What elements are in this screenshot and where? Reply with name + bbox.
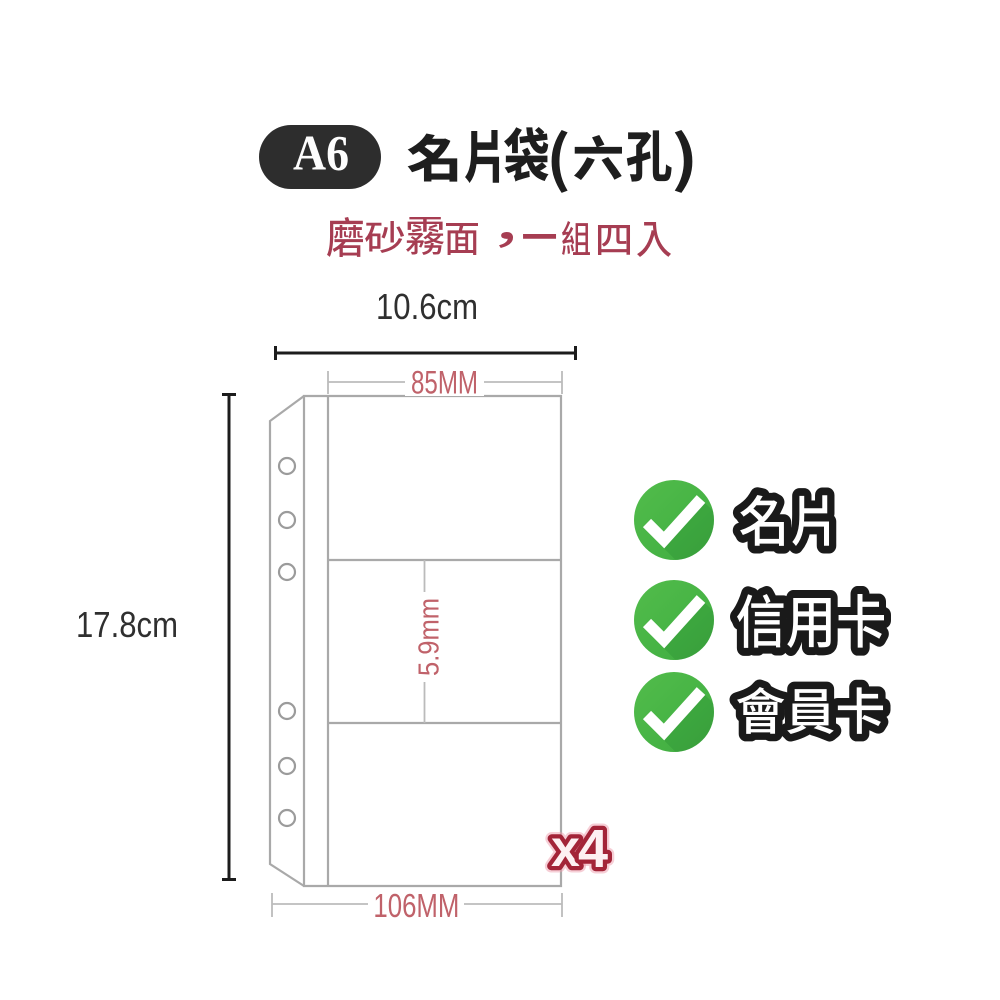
svg-text:x: x <box>551 820 580 878</box>
svg-text:4: 4 <box>578 819 608 879</box>
svg-text:85MM: 85MM <box>411 365 478 401</box>
svg-text:17.8cm: 17.8cm <box>76 604 178 645</box>
svg-text:A6: A6 <box>293 125 349 181</box>
svg-text:10.6cm: 10.6cm <box>376 286 478 327</box>
svg-text:106MM: 106MM <box>373 887 459 924</box>
svg-text:5.9mm: 5.9mm <box>414 598 446 676</box>
